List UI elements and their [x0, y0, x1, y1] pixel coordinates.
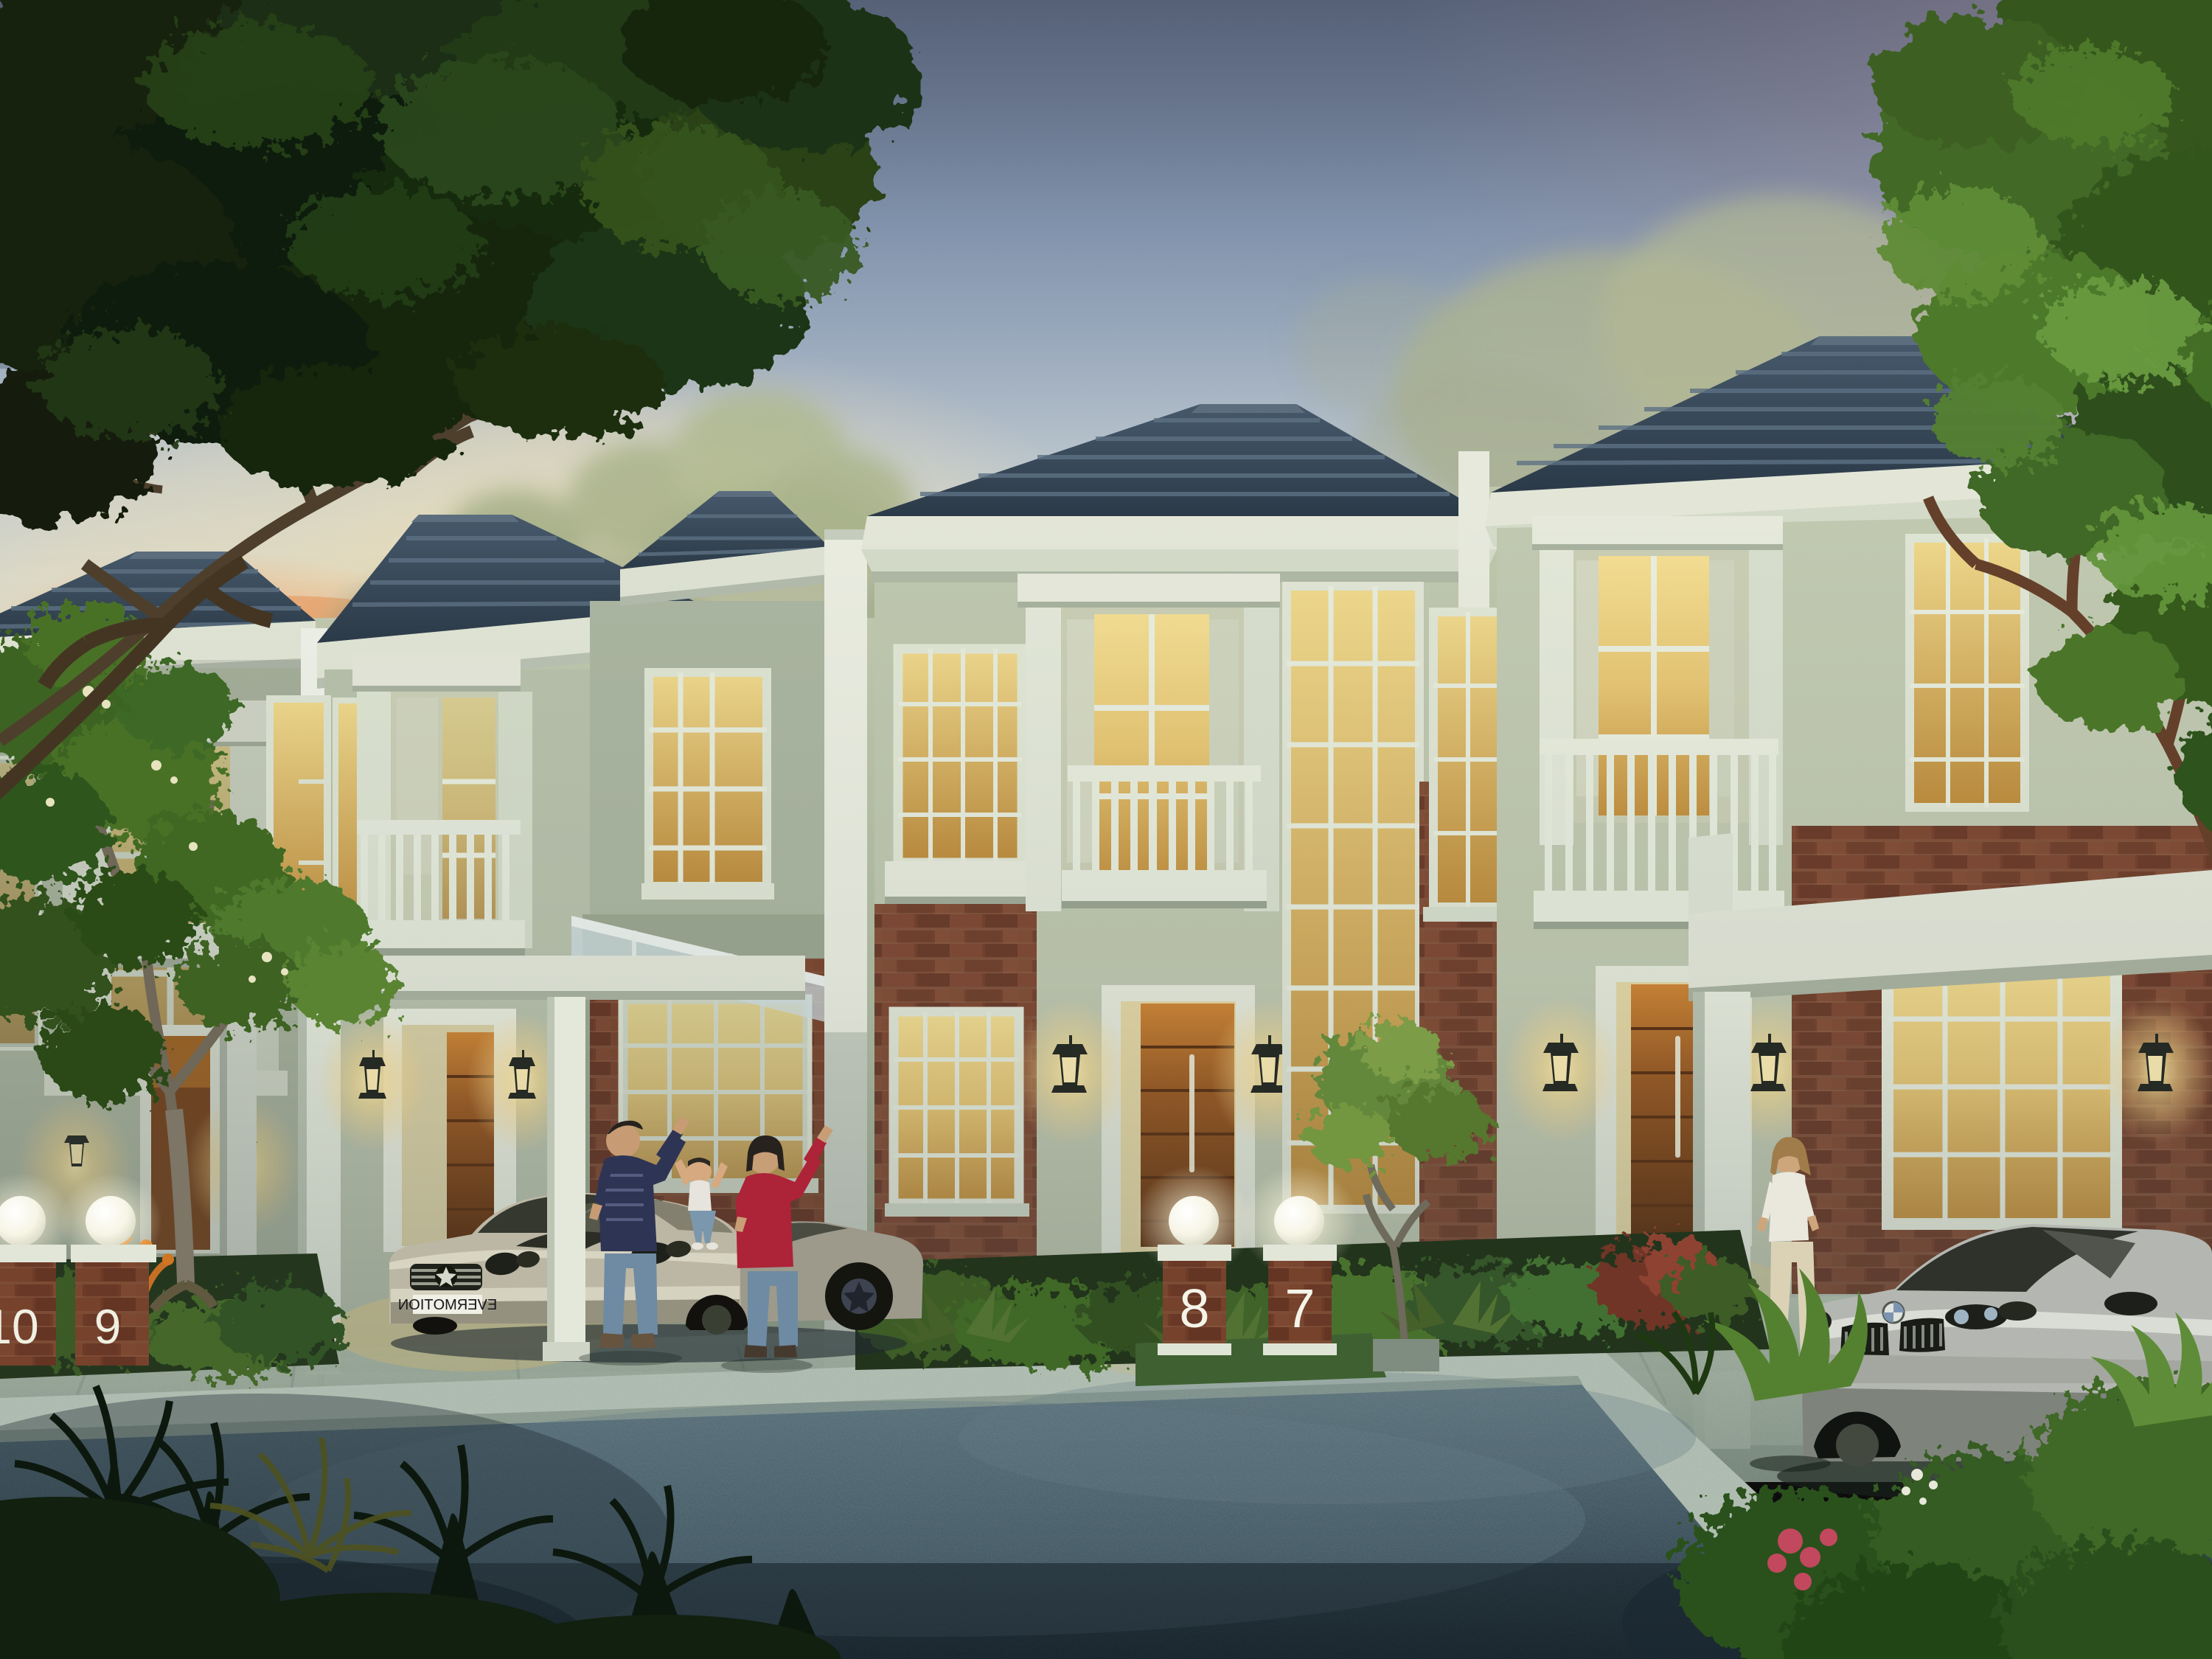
svg-text:7: 7 [1284, 1278, 1315, 1339]
svg-text:9: 9 [94, 1299, 122, 1354]
svg-text:8: 8 [1179, 1278, 1209, 1339]
svg-text:EVERMOTION: EVERMOTION [398, 1297, 497, 1313]
svg-text:10: 10 [0, 1299, 39, 1354]
